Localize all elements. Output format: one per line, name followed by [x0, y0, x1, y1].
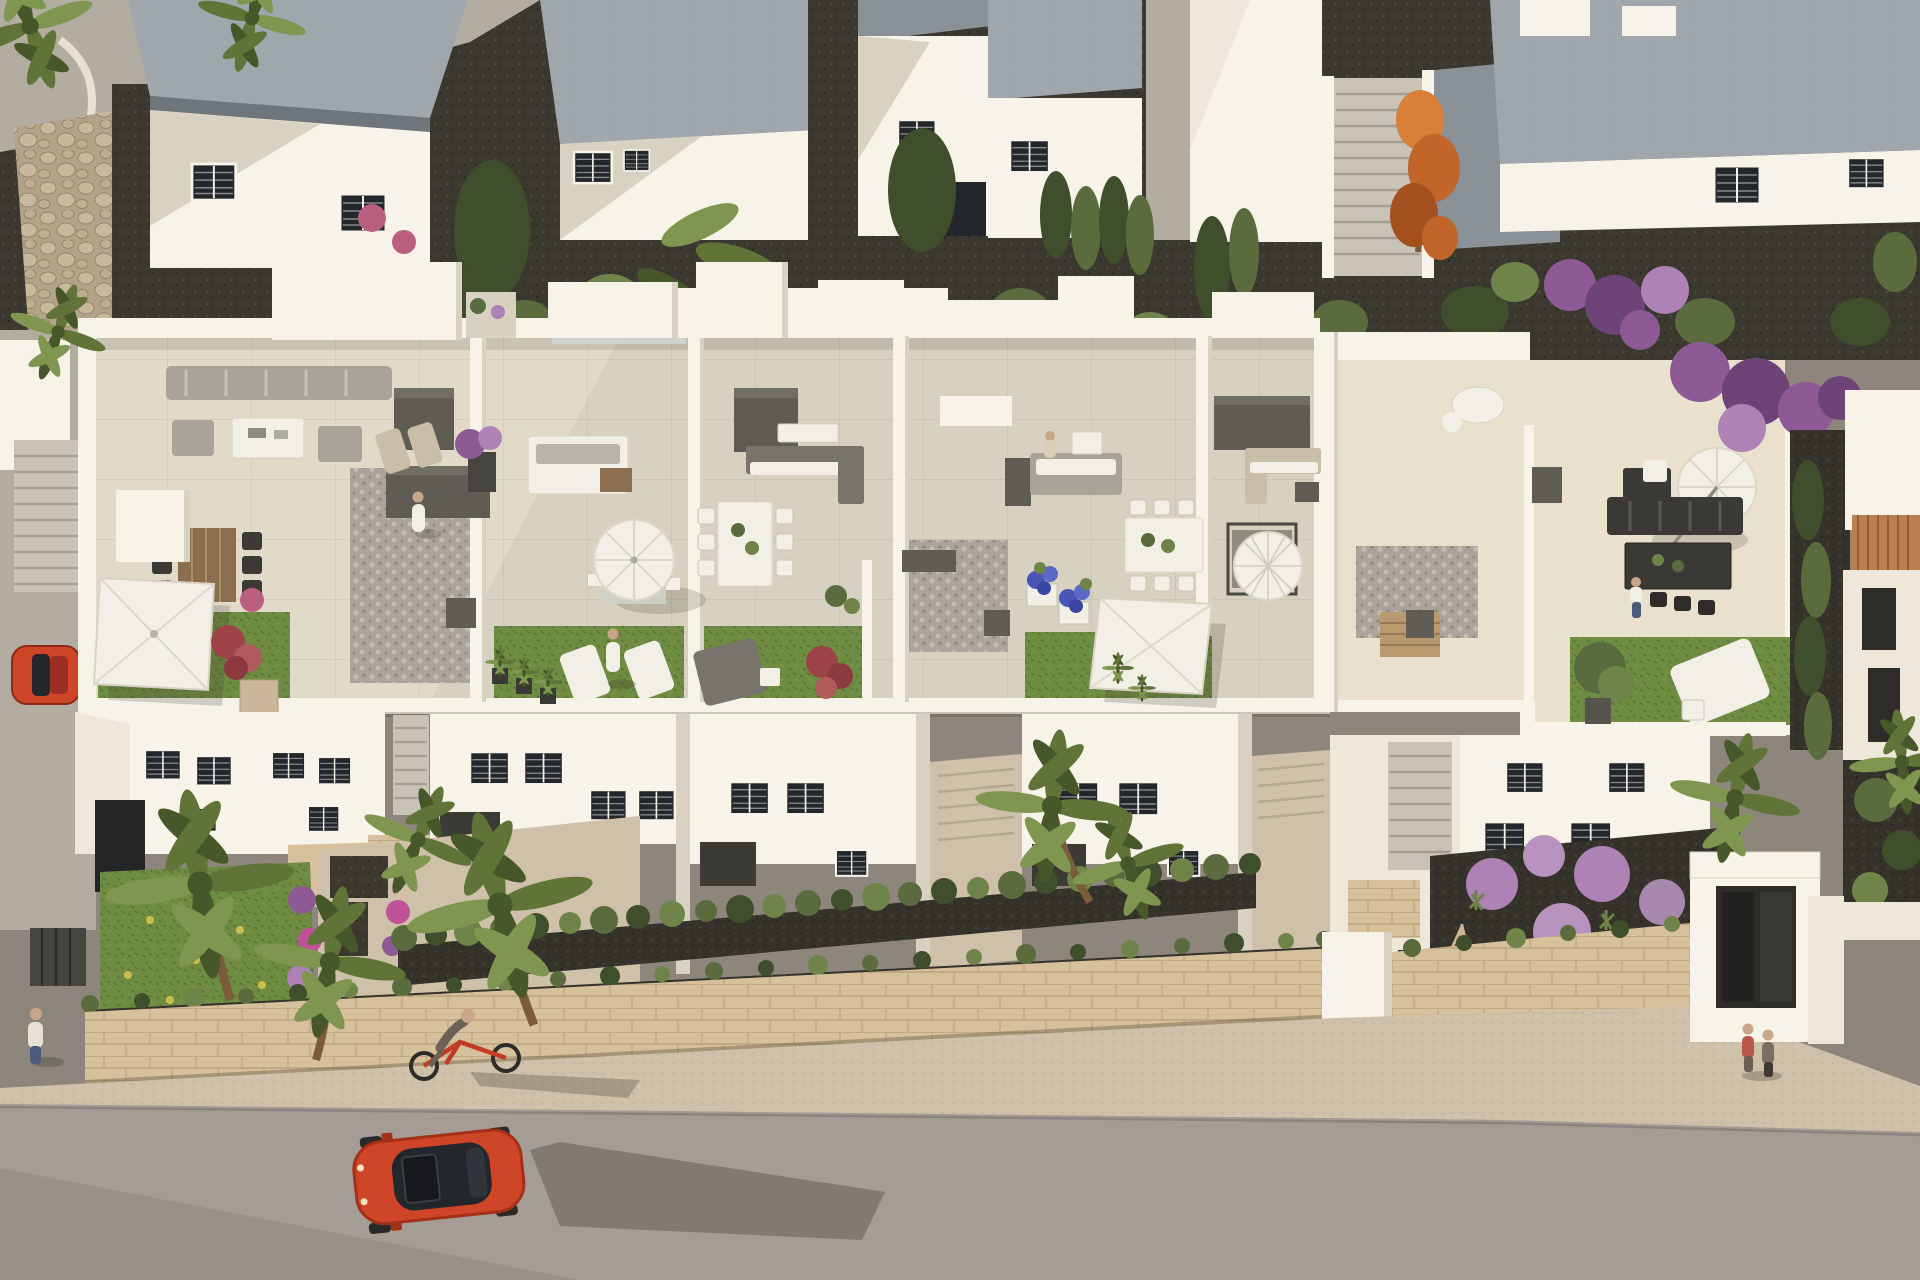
coffee-table	[600, 468, 632, 492]
white-dining-set	[698, 502, 793, 586]
glass-balustrade	[552, 338, 686, 344]
right-side-garden	[1790, 430, 1850, 760]
light-path	[1146, 0, 1190, 240]
white-dining-set-4	[1125, 500, 1203, 591]
pedestrian-left	[28, 1008, 64, 1067]
stair-box	[116, 490, 190, 562]
tree	[888, 128, 956, 252]
neighbor-house-right	[1843, 390, 1920, 940]
square-parasol-4	[1090, 598, 1226, 708]
bg-house-1	[128, 0, 468, 268]
bg-house-2	[540, 0, 852, 240]
bg-house-6	[1490, 0, 1920, 232]
pink-flowers	[240, 588, 264, 612]
louvered-panel	[30, 928, 86, 986]
aerial-render-canvas	[0, 0, 1920, 1280]
square-parasol-1	[94, 578, 230, 706]
person-sitting	[1044, 431, 1056, 458]
architectural-rendering: Aerial 3D architectural rendering of a w…	[0, 0, 1920, 1280]
